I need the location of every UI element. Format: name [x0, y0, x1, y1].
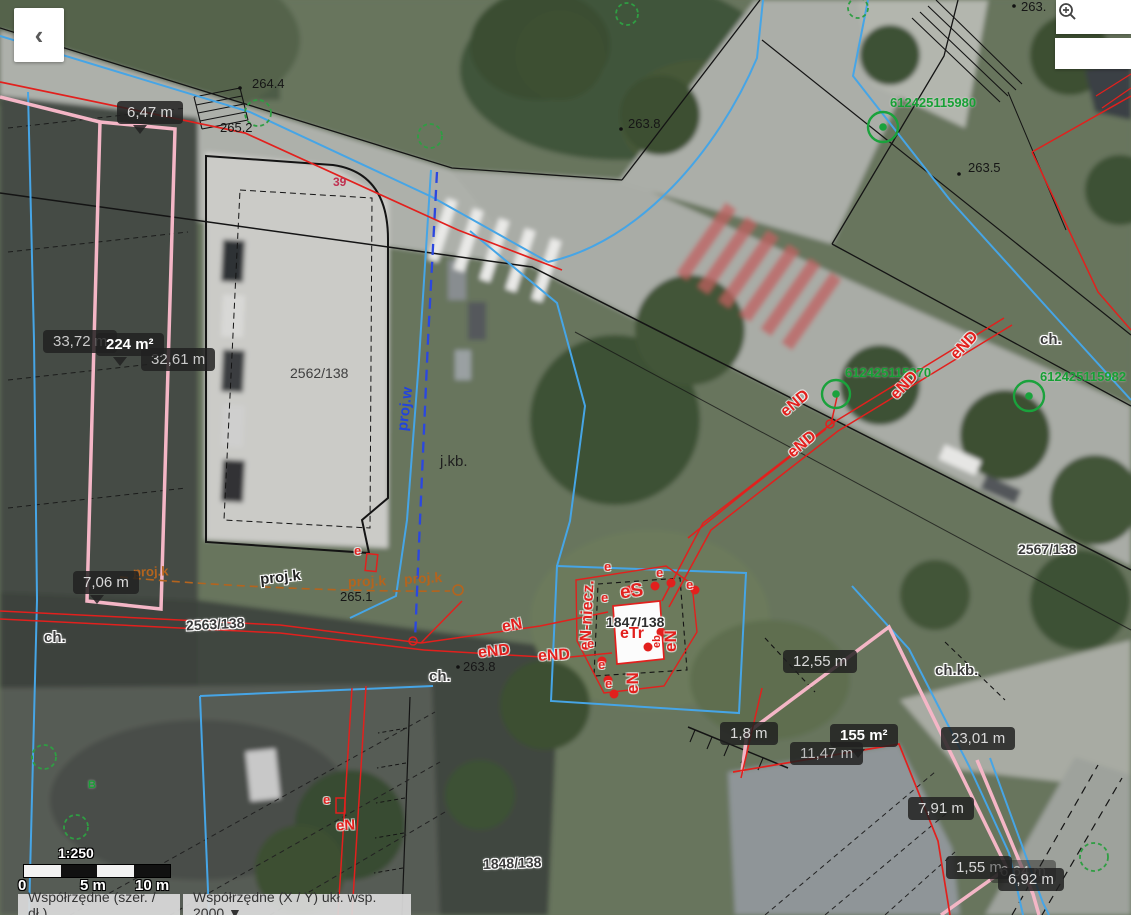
utility-code: e — [601, 591, 608, 604]
tooltip-tail — [90, 595, 104, 604]
surface-label: ch. — [429, 669, 451, 684]
elevation-label: 263.5 — [968, 161, 1001, 174]
parcel-number: 2563/138 — [186, 615, 245, 632]
utility-code: eN — [336, 818, 356, 834]
utility-code: e — [323, 793, 330, 806]
elevation-label: 263. — [1021, 0, 1046, 13]
project-cable-label: proj.k — [259, 568, 301, 587]
coords-geo-button[interactable]: Współrzędne (szer. / dł.) — [18, 894, 180, 915]
coords-xy-label: Współrzędne (X / Y) ukł. wsp. 2000 ▼ — [193, 889, 401, 915]
geodetic-point-id: 612425115982 — [1040, 370, 1126, 383]
coords-geo-label: Współrzędne (szer. / dł.) — [28, 889, 170, 915]
area-tooltip: 224 m² — [96, 333, 164, 356]
map-viewport[interactable]: 264.4 265.2 263.8 263.5 265.1 263.8 263.… — [0, 0, 1131, 915]
elevation-label: 265.1 — [340, 590, 373, 603]
tooltip-tail — [113, 357, 127, 366]
measurement-tooltip: 6,47 m — [117, 101, 183, 124]
pink-parcel-lines — [0, 97, 1039, 915]
utility-code: eND — [538, 647, 571, 665]
project-cable-label: proj.k — [348, 573, 387, 588]
project-cable-label: proj.k — [404, 570, 443, 586]
measurement-tooltip: 7,06 m — [73, 571, 139, 594]
geodetic-point-id: 612425115980 — [890, 96, 976, 109]
utility-code: eTr — [620, 626, 644, 642]
utility-code: e — [587, 637, 594, 650]
parcel-number: 2567/138 — [1018, 542, 1076, 556]
elevation-label: 264.4 — [252, 77, 285, 90]
parcel-number: 2562/138 — [290, 366, 348, 380]
tooltip-tail — [133, 125, 147, 134]
scale-bar — [23, 864, 171, 878]
surface-label: j.kb. — [440, 454, 468, 469]
utility-code: eb — [652, 635, 663, 648]
utility-code: eND — [477, 642, 511, 661]
elevation-label: 265.2 — [220, 121, 253, 134]
magnifier-minus-icon — [1056, 0, 1080, 24]
parcel-number: 1848/138 — [483, 855, 542, 871]
zoom-controls — [1056, 0, 1131, 34]
toolbar-panel — [1055, 38, 1131, 69]
elevation-label: 263.8 — [463, 660, 496, 673]
tree-code-label: B — [88, 780, 96, 791]
collapse-sidebar-button[interactable]: ‹ — [14, 8, 64, 62]
area-tooltip: 155 m² — [830, 724, 898, 747]
utility-code: e — [686, 578, 693, 591]
coords-xy-dropdown[interactable]: Współrzędne (X / Y) ukł. wsp. 2000 ▼ — [183, 894, 411, 915]
measurement-tooltip: 23,01 m — [941, 727, 1015, 750]
utility-code: e — [598, 658, 605, 671]
elevation-label: 263.8 — [628, 117, 661, 130]
surface-label: ch. — [1040, 332, 1062, 347]
utility-code: eN — [624, 672, 641, 694]
utility-code: eN — [662, 630, 679, 652]
scale-tick: 0 — [18, 877, 26, 894]
address-number: 39 — [333, 176, 346, 188]
measurement-tooltip: 6,92 m — [998, 868, 1064, 891]
red-utility-lines — [0, 74, 1131, 915]
tooltip-tail — [851, 749, 865, 758]
measurement-tooltip: 7,91 m — [908, 797, 974, 820]
surface-label: ch. — [44, 630, 66, 645]
utility-code: e — [656, 566, 663, 579]
scale-ratio: 1:250 — [58, 845, 94, 861]
surface-label: ch.kb. — [935, 663, 978, 678]
utility-code: e — [605, 677, 612, 690]
utility-code: e — [354, 544, 361, 557]
map-linework — [0, 0, 1131, 915]
measurement-tooltip: 1,8 m — [720, 722, 778, 745]
chevron-left-icon: ‹ — [35, 20, 44, 51]
utility-code: e — [604, 560, 611, 573]
zoom-out-button[interactable] — [1094, 0, 1131, 34]
utility-code: eS — [619, 581, 644, 603]
measurement-tooltip: 12,55 m — [783, 650, 857, 673]
